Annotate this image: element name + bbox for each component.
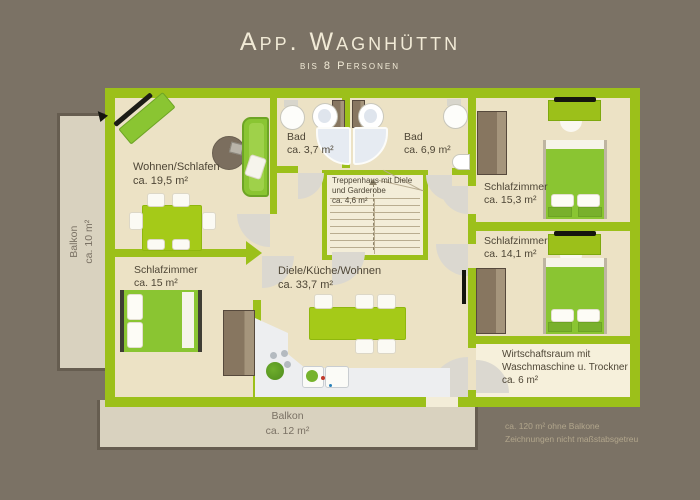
long-dining-table-icon xyxy=(309,307,406,340)
wall xyxy=(468,268,476,348)
room-area: ca. 19,5 m² xyxy=(133,174,220,188)
bed-sheet xyxy=(546,258,604,267)
chair-icon xyxy=(202,212,216,230)
balcony-bottom-name: Balkon xyxy=(97,409,478,424)
toilet-icon xyxy=(443,104,468,129)
room-label-wirtschaftsraum: Wirtschaftsraum mit Waschmaschine u. Tro… xyxy=(502,348,634,387)
burner-icon xyxy=(284,361,291,368)
wardrobe-icon xyxy=(223,310,255,376)
balcony-bottom-area: ca. 12 m² xyxy=(97,424,478,439)
pillow-icon xyxy=(551,194,574,207)
chair-icon xyxy=(147,239,165,250)
room-area: ca. 3,7 m² xyxy=(287,144,334,157)
room-label-schlafzimmer-15: Schlafzimmer ca. 15 m² xyxy=(134,264,198,291)
plant-icon xyxy=(266,362,284,380)
burner-icon xyxy=(270,352,277,359)
room-name: Bad xyxy=(404,131,451,144)
room-label-bad-1: Bad ca. 3,7 m² xyxy=(287,131,334,158)
chair-icon xyxy=(355,294,374,309)
double-bed-icon xyxy=(543,258,607,334)
wall-tv-icon xyxy=(462,270,466,304)
balcony-bottom-label: Balkon ca. 12 m² xyxy=(97,409,478,438)
tv-icon xyxy=(554,231,596,236)
stairs-divider xyxy=(374,198,375,254)
sink-basin xyxy=(364,109,377,123)
room-name: Bad xyxy=(287,131,334,144)
footnote-line-2: Zeichnungen nicht maßstabsgetreu xyxy=(505,433,638,446)
page-title: App. Wagnhüttn xyxy=(0,28,700,57)
headboard-block xyxy=(578,207,602,217)
room-label-diele-kueche-wohnen: Diele/Küche/Wohnen ca. 33,7 m² xyxy=(278,264,381,292)
room-name: Wohnen/Schlafen xyxy=(133,160,220,174)
chair-icon xyxy=(355,339,374,354)
room-area: ca. 33,7 m² xyxy=(278,278,381,292)
room-area: ca. 6,9 m² xyxy=(404,144,451,157)
bed-sheet xyxy=(546,140,604,149)
wall xyxy=(468,390,476,397)
wall xyxy=(476,222,632,231)
chair-icon xyxy=(377,294,396,309)
room-label-bad-2: Bad ca. 6,9 m² xyxy=(404,131,451,158)
burner-icon xyxy=(281,350,288,357)
wall xyxy=(270,98,277,214)
headboard-block xyxy=(548,322,572,332)
room-name: Diele/Küche/Wohnen xyxy=(278,264,381,278)
room-label-wohnen-schlafen: Wohnen/Schlafen ca. 19,5 m² xyxy=(133,160,220,188)
chair-icon xyxy=(172,193,190,207)
chair-icon xyxy=(147,193,165,207)
wall xyxy=(270,166,298,173)
headboard-block xyxy=(578,322,602,332)
room-area: ca. 15 m² xyxy=(134,277,198,290)
double-bed-icon xyxy=(543,140,607,219)
room-label-schlafzimmer-153: Schlafzimmer ca. 15,3 m² xyxy=(484,181,548,208)
sink-basin xyxy=(318,109,331,123)
chair-icon xyxy=(172,239,190,250)
room-label-schlafzimmer-141: Schlafzimmer ca. 14,1 m² xyxy=(484,235,548,262)
pillow-icon xyxy=(127,322,143,348)
bed-sheet xyxy=(182,292,194,348)
stairs-steps-icon xyxy=(330,198,420,254)
room-label-treppenhaus: Treppenhaus mit Diele und Garderobe ca. … xyxy=(332,176,414,206)
page-subtitle: bis 8 Personen xyxy=(0,60,700,72)
room-area: ca. 15,3 m² xyxy=(484,194,548,207)
toilet-icon xyxy=(280,105,305,130)
sideboard-icon xyxy=(548,100,601,121)
wardrobe-icon xyxy=(476,268,506,334)
footnote: ca. 120 m² ohne Balkone Zeichnungen nich… xyxy=(505,420,638,446)
pillow-icon xyxy=(551,309,574,322)
room-name: Schlafzimmer xyxy=(134,264,198,277)
chair-icon xyxy=(314,294,333,309)
room-name: Schlafzimmer xyxy=(484,235,548,248)
room-area: ca. 4,6 m² xyxy=(332,196,414,206)
pillow-icon xyxy=(577,194,600,207)
faucet-hot-dot xyxy=(321,376,325,380)
balcony-left-name: Balkon xyxy=(67,220,82,264)
pillow-icon xyxy=(577,309,600,322)
wall xyxy=(476,336,632,344)
sideboard-icon xyxy=(548,234,601,255)
wall xyxy=(468,214,476,244)
room-name: Schlafzimmer xyxy=(484,181,548,194)
pillow-icon xyxy=(127,294,143,320)
headboard-block xyxy=(548,207,572,217)
room-area: ca. 6 m² xyxy=(502,374,634,387)
floorplan-page: App. Wagnhüttn bis 8 Personen Balkon ca.… xyxy=(0,0,700,500)
balcony-door-threshold xyxy=(426,397,458,407)
room-name: Treppenhaus mit Diele und Garderobe xyxy=(332,176,412,195)
pot-icon xyxy=(306,370,318,382)
tv-icon xyxy=(554,97,596,102)
double-bed-icon xyxy=(120,290,202,352)
room-area: ca. 14,1 m² xyxy=(484,248,548,261)
chair-icon xyxy=(377,339,396,354)
corner-sink-icon xyxy=(452,154,470,170)
balcony-left-area: ca. 10 m² xyxy=(82,220,97,264)
faucet-cold-dot xyxy=(329,384,332,387)
wardrobe-icon xyxy=(477,111,507,175)
footnote-line-1: ca. 120 m² ohne Balkone xyxy=(505,420,638,433)
room-name: Wirtschaftsraum mit Waschmaschine u. Tro… xyxy=(502,349,628,373)
balcony-left-label: Balkon ca. 10 m² xyxy=(57,113,107,371)
chair-icon xyxy=(129,212,143,230)
wall xyxy=(468,98,476,186)
